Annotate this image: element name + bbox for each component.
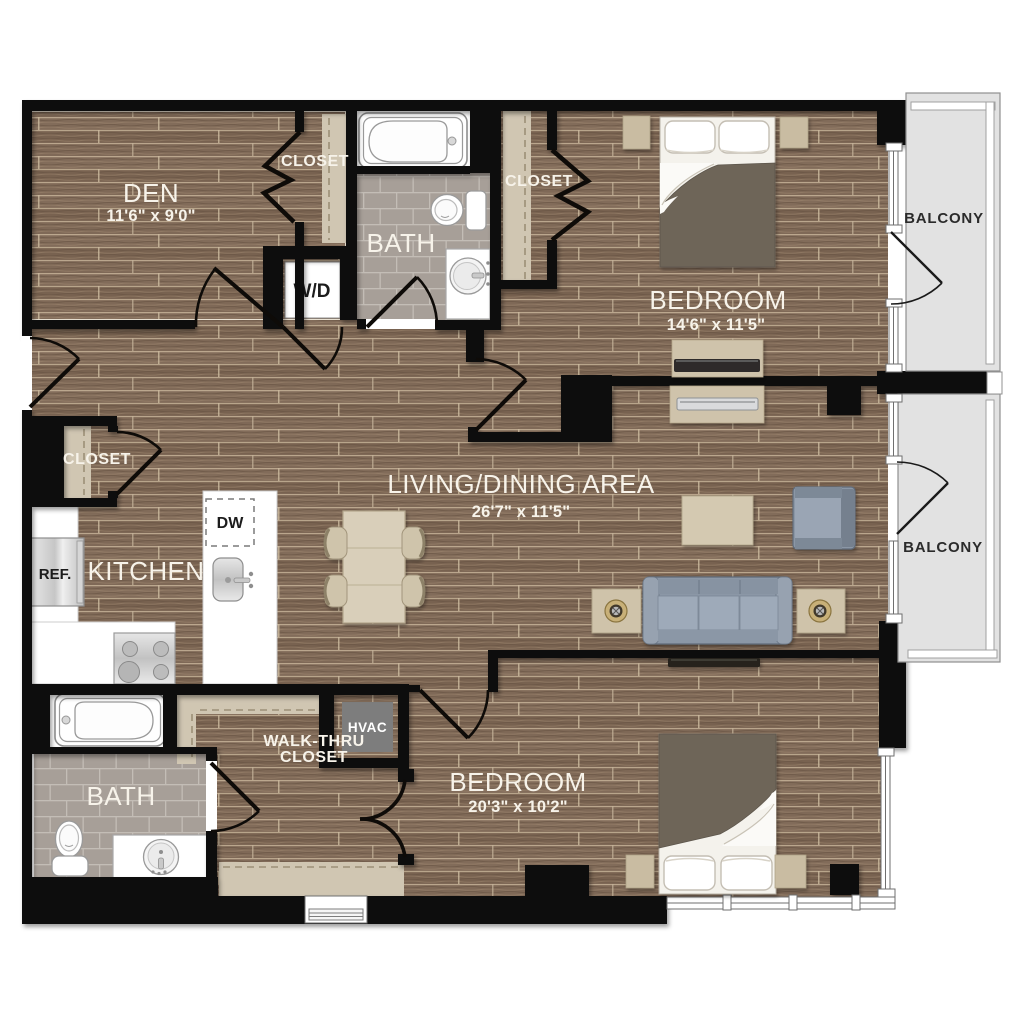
svg-text:CLOSET: CLOSET <box>280 749 348 766</box>
svg-text:BATH: BATH <box>366 228 435 258</box>
svg-text:CLOSET: CLOSET <box>63 451 131 468</box>
svg-text:KITCHEN: KITCHEN <box>88 556 205 586</box>
svg-text:BALCONY: BALCONY <box>904 210 984 227</box>
svg-text:BATH: BATH <box>86 781 155 811</box>
svg-text:CLOSET: CLOSET <box>281 153 349 170</box>
svg-text:REF.: REF. <box>39 566 72 583</box>
svg-text:CLOSET: CLOSET <box>505 173 573 190</box>
svg-text:20'3" x 10'2": 20'3" x 10'2" <box>468 798 568 816</box>
svg-text:LIVING/DINING AREA: LIVING/DINING AREA <box>387 469 655 499</box>
svg-text:DW: DW <box>217 515 245 532</box>
svg-text:11'6" x 9'0": 11'6" x 9'0" <box>106 207 195 225</box>
svg-text:26'7" x 11'5": 26'7" x 11'5" <box>472 503 571 521</box>
svg-text:WALK-THRU: WALK-THRU <box>263 733 364 750</box>
svg-text:BALCONY: BALCONY <box>903 539 983 556</box>
svg-text:BEDROOM: BEDROOM <box>449 767 586 797</box>
svg-text:14'6" x 11'5": 14'6" x 11'5" <box>667 316 766 334</box>
svg-text:BEDROOM: BEDROOM <box>649 285 786 315</box>
svg-text:DEN: DEN <box>123 178 179 208</box>
